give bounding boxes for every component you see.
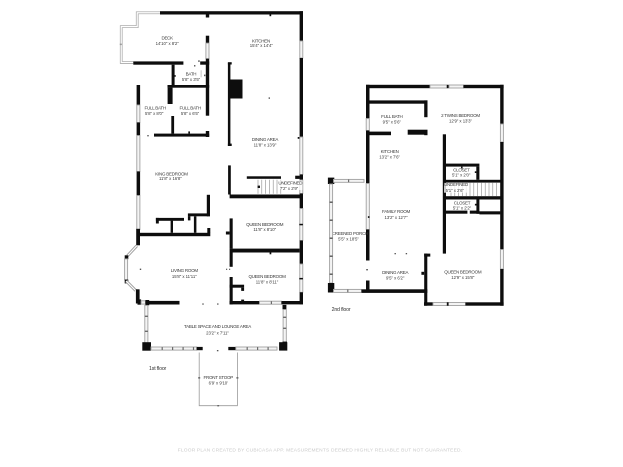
svg-text:QUEEN BEDROOM: QUEEN BEDROOM <box>248 274 286 279</box>
svg-text:FULL BATH: FULL BATH <box>179 106 200 111</box>
svg-text:FULL BATH: FULL BATH <box>144 106 165 111</box>
svg-text:5'8" x 6'5": 5'8" x 6'5" <box>181 111 200 116</box>
svg-text:5'8" x 3'5": 5'8" x 3'5" <box>182 77 201 82</box>
svg-text:5'1" x 2'0": 5'1" x 2'0" <box>452 173 471 178</box>
svg-text:DECK: DECK <box>161 36 173 41</box>
svg-text:14'10" x 8'2": 14'10" x 8'2" <box>156 41 180 46</box>
svg-text:13'2" x 12'7": 13'2" x 12'7" <box>384 215 408 220</box>
svg-text:5'8" x 8'0": 5'8" x 8'0" <box>145 111 164 116</box>
svg-text:1st floor: 1st floor <box>149 366 167 372</box>
svg-text:BATH: BATH <box>186 71 197 76</box>
svg-text:6'9' x 9'10': 6'9' x 9'10' <box>209 380 229 385</box>
svg-text:12'9" x 15'8": 12'9" x 15'8" <box>451 275 475 280</box>
svg-text:12'9" x 13'3": 12'9" x 13'3" <box>449 118 473 123</box>
svg-text:UNDEFINED: UNDEFINED <box>444 182 469 187</box>
svg-text:QUEEN BEDROOM: QUEEN BEDROOM <box>444 269 482 274</box>
svg-text:2 TWINS BEDROOM: 2 TWINS BEDROOM <box>441 113 480 118</box>
svg-text:FRONT STOOP: FRONT STOOP <box>204 375 234 380</box>
svg-text:DINING AREA: DINING AREA <box>382 270 408 275</box>
svg-text:11'8" x 8'11": 11'8" x 8'11" <box>256 280 279 285</box>
svg-text:DINING AREA: DINING AREA <box>252 137 278 142</box>
svg-text:TABLE SPACE AND LOUNGE AREA: TABLE SPACE AND LOUNGE AREA <box>184 324 251 329</box>
svg-text:FLOOR PLAN CREATED BY CUBICASA: FLOOR PLAN CREATED BY CUBICASA APP. MEAS… <box>178 447 463 453</box>
svg-text:15'4" x 14'4": 15'4" x 14'4" <box>250 43 274 48</box>
svg-text:11'8" x 16'8": 11'8" x 16'8" <box>159 176 182 181</box>
svg-text:SCREENED PORCH: SCREENED PORCH <box>329 231 368 236</box>
svg-text:23'2" x 7'11": 23'2" x 7'11" <box>206 331 229 336</box>
svg-text:11'8" x 13'9": 11'8" x 13'9" <box>254 143 277 148</box>
svg-text:FAMILY ROOM: FAMILY ROOM <box>382 209 410 214</box>
svg-text:FULL BATH: FULL BATH <box>381 114 402 119</box>
svg-text:2nd floor: 2nd floor <box>332 307 351 313</box>
svg-text:5'5" x 18'5": 5'5" x 18'5" <box>338 237 359 242</box>
svg-text:15'8" x 11'11": 15'8" x 11'11" <box>172 274 197 279</box>
svg-text:9'5" x 6'2": 9'5" x 6'2" <box>386 276 405 281</box>
svg-text:11'8" x 8'10": 11'8" x 8'10" <box>253 227 276 232</box>
svg-text:5'1" x 2'6": 5'1" x 2'6" <box>446 188 465 193</box>
svg-text:9'5" x 5'6": 9'5" x 5'6" <box>383 120 402 125</box>
svg-text:13'2" x 7'6": 13'2" x 7'6" <box>379 155 400 160</box>
svg-text:7'2" x 2'9": 7'2" x 2'9" <box>280 186 299 191</box>
svg-text:KITCHEN: KITCHEN <box>381 149 399 154</box>
svg-text:LIVING ROOM: LIVING ROOM <box>171 268 199 273</box>
svg-text:5'1" x 2'2": 5'1" x 2'2" <box>453 206 472 211</box>
